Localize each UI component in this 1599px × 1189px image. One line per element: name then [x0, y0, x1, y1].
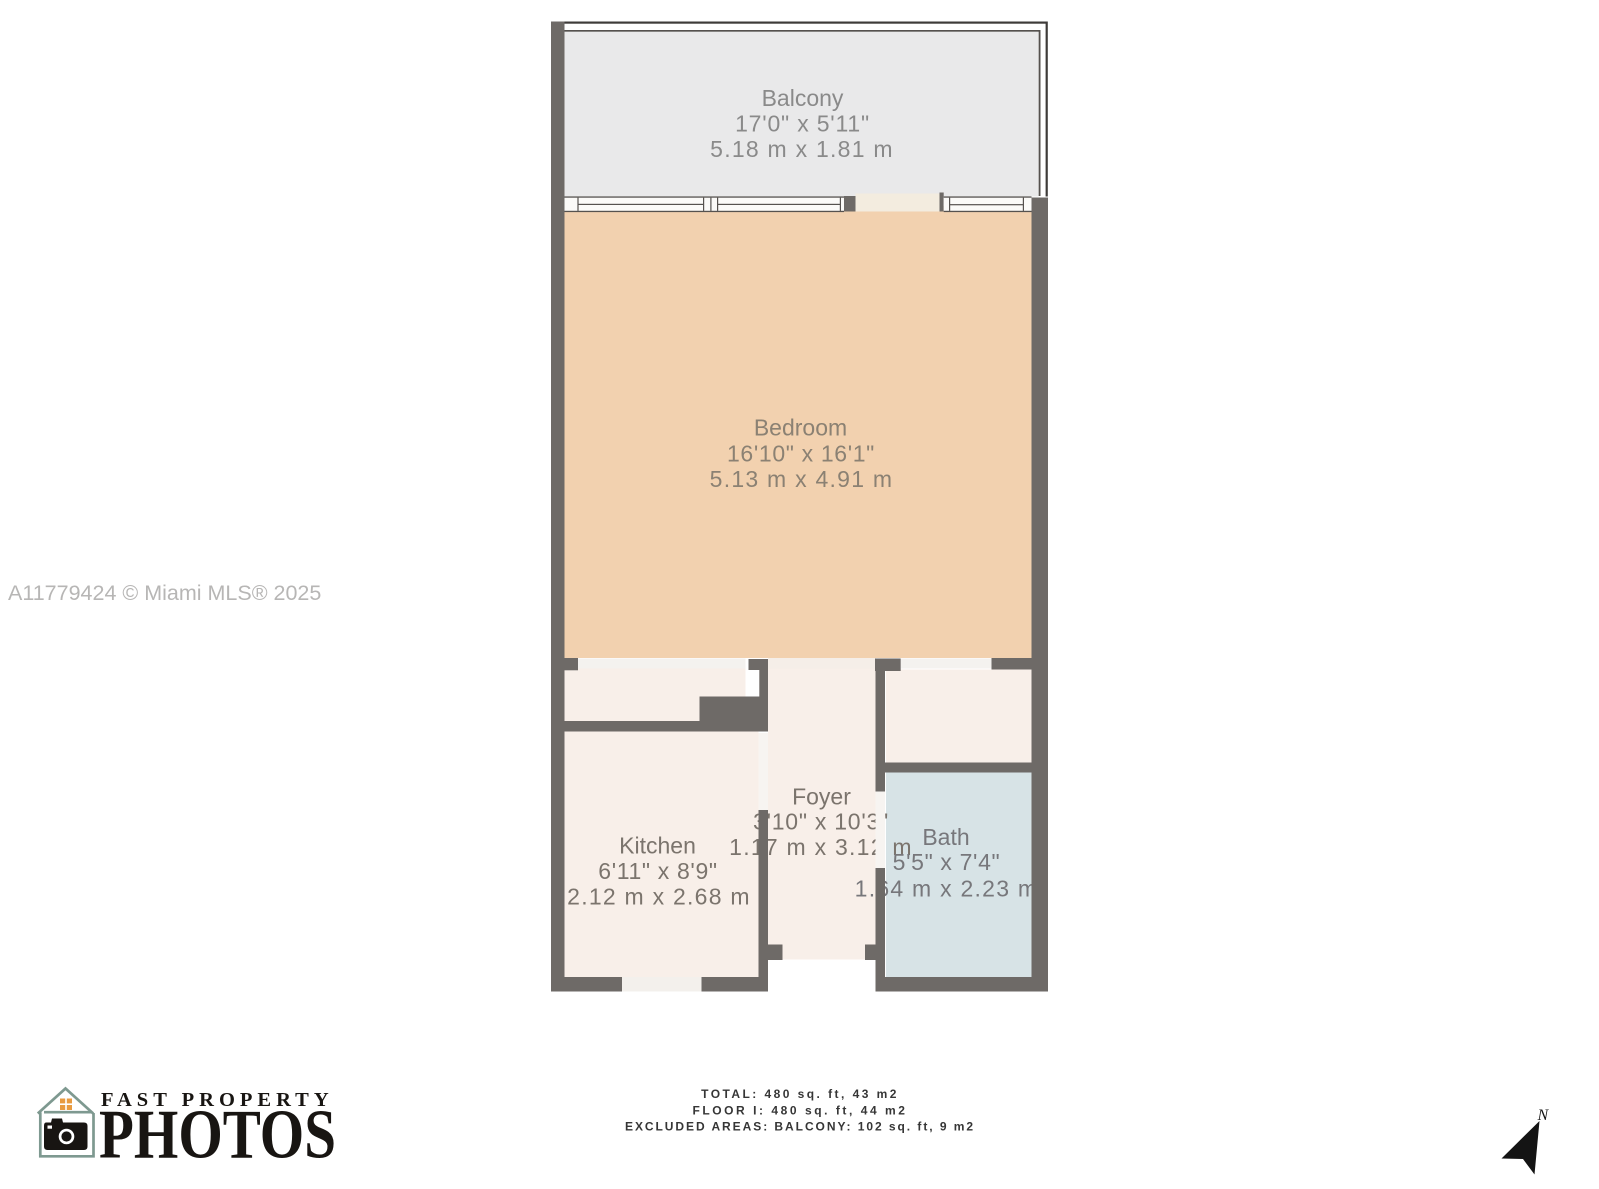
svg-text:3'10" x 10'3": 3'10" x 10'3" [753, 809, 889, 835]
svg-text:5'5" x 7'4": 5'5" x 7'4" [893, 849, 1001, 875]
svg-text:5.18 m x 1.81 m: 5.18 m x 1.81 m [710, 136, 894, 162]
svg-text:Kitchen: Kitchen [619, 833, 696, 859]
svg-text:A11779424 © Miami MLS® 2025: A11779424 © Miami MLS® 2025 [8, 581, 321, 605]
svg-text:EXCLUDED AREAS: BALCONY: 102 s: EXCLUDED AREAS: BALCONY: 102 sq. ft, 9 m… [625, 1120, 975, 1134]
svg-text:Balcony: Balcony [762, 85, 844, 111]
svg-text:PHOTOS: PHOTOS [99, 1097, 336, 1174]
svg-text:2.12 m x 2.68 m: 2.12 m x 2.68 m [567, 884, 751, 910]
svg-text:Bedroom: Bedroom [754, 415, 847, 441]
svg-text:N: N [1537, 1107, 1550, 1124]
svg-text:5.13 m x 4.91 m: 5.13 m x 4.91 m [710, 466, 894, 492]
svg-text:1.17 m x 3.12 m: 1.17 m x 3.12 m [729, 834, 913, 860]
svg-text:FLOOR I: 480 sq. ft, 44 m2: FLOOR I: 480 sq. ft, 44 m2 [692, 1104, 907, 1118]
svg-text:6'11" x 8'9": 6'11" x 8'9" [598, 858, 717, 884]
svg-text:TOTAL: 480 sq. ft, 43 m2: TOTAL: 480 sq. ft, 43 m2 [701, 1087, 899, 1101]
svg-text:17'0" x 5'11": 17'0" x 5'11" [735, 111, 870, 137]
svg-text:16'10" x 16'1": 16'10" x 16'1" [727, 441, 875, 467]
svg-text:Foyer: Foyer [792, 784, 851, 810]
svg-text:Bath: Bath [922, 824, 969, 850]
